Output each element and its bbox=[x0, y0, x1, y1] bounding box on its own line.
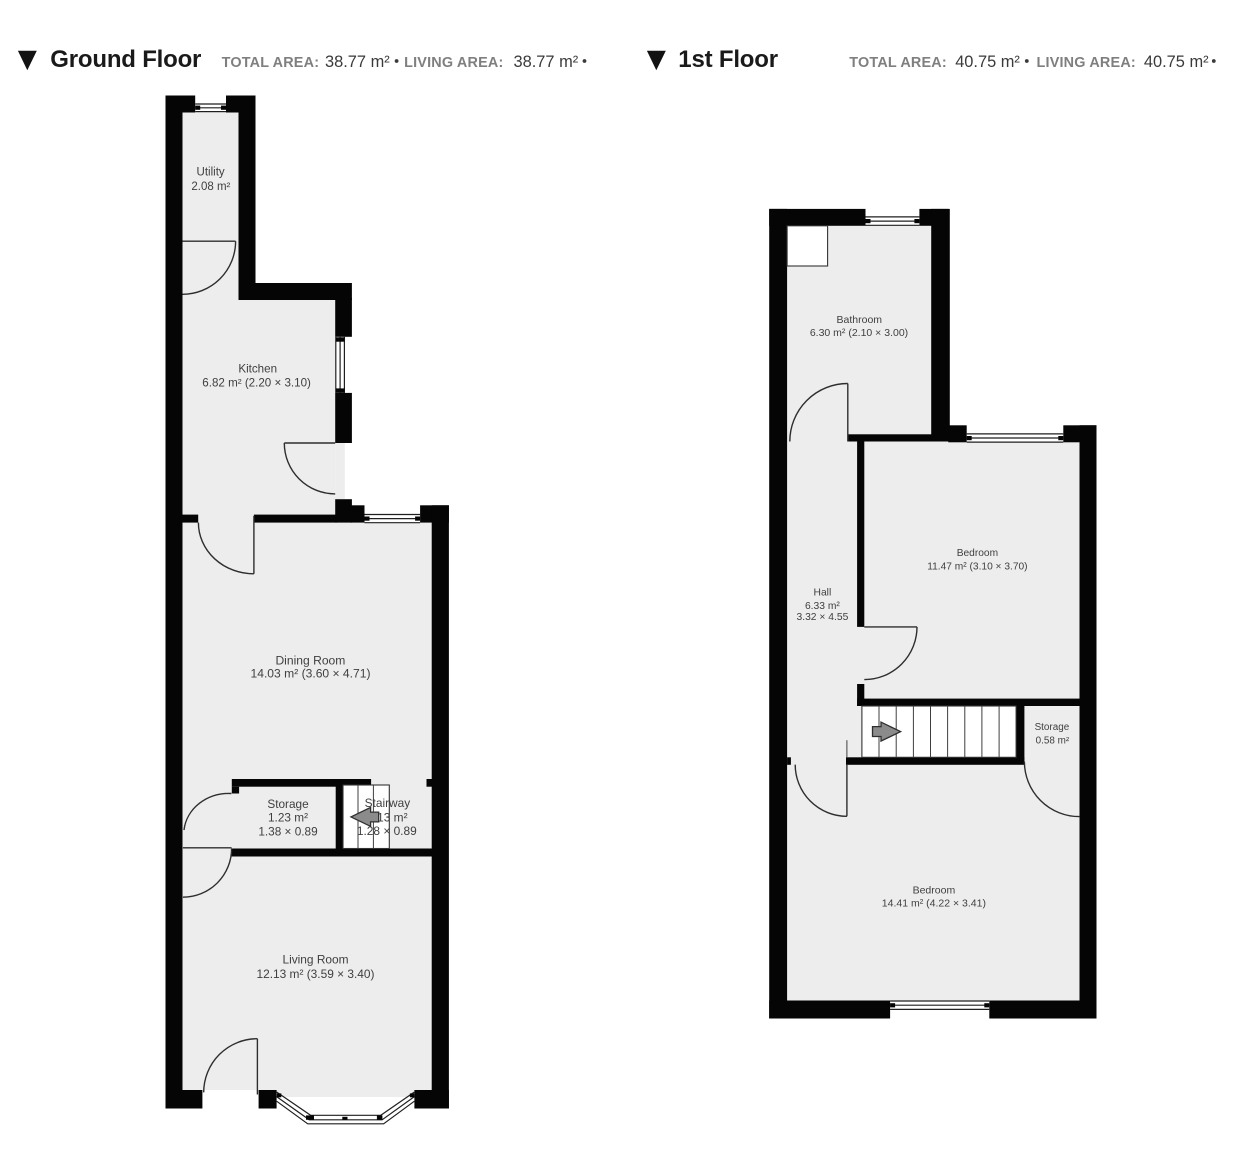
svg-text:LIVING AREA:: LIVING AREA: bbox=[404, 55, 503, 71]
svg-text:1.38 × 0.89: 1.38 × 0.89 bbox=[258, 824, 317, 838]
svg-text:38.77 m²: 38.77 m² bbox=[514, 53, 579, 71]
svg-text:0.58 m²: 0.58 m² bbox=[1036, 736, 1070, 747]
svg-text:14.41 m² (4.22 × 3.41): 14.41 m² (4.22 × 3.41) bbox=[882, 897, 986, 909]
svg-text:TOTAL AREA:: TOTAL AREA: bbox=[849, 55, 947, 71]
svg-text:3.32 × 4.55: 3.32 × 4.55 bbox=[796, 612, 848, 623]
svg-text:Storage: Storage bbox=[1035, 722, 1070, 733]
svg-text:Kitchen: Kitchen bbox=[238, 363, 277, 376]
svg-text:LIVING AREA:: LIVING AREA: bbox=[1037, 55, 1136, 71]
svg-text:38.77 m²: 38.77 m² bbox=[325, 53, 390, 71]
svg-text:6.33 m²: 6.33 m² bbox=[805, 601, 840, 612]
svg-text:Living Room: Living Room bbox=[282, 952, 348, 966]
svg-text:Hall: Hall bbox=[814, 588, 832, 599]
svg-text:Dining Room: Dining Room bbox=[275, 653, 345, 667]
svg-text:Storage: Storage bbox=[267, 797, 309, 811]
svg-text:1.23 m²: 1.23 m² bbox=[268, 811, 308, 825]
svg-text:1st Floor: 1st Floor bbox=[678, 46, 778, 73]
svg-text:6.82 m² (2.20 × 3.10): 6.82 m² (2.20 × 3.10) bbox=[202, 376, 311, 389]
svg-text:11.47 m² (3.10 × 3.70): 11.47 m² (3.10 × 3.70) bbox=[927, 562, 1027, 573]
svg-text:Ground Floor: Ground Floor bbox=[50, 46, 201, 73]
svg-text:Utility: Utility bbox=[197, 167, 225, 179]
svg-text:12.13 m² (3.59 × 3.40): 12.13 m² (3.59 × 3.40) bbox=[257, 967, 375, 981]
svg-text:6.30 m² (2.10 × 3.00): 6.30 m² (2.10 × 3.00) bbox=[810, 327, 908, 339]
svg-text:Bedroom: Bedroom bbox=[913, 885, 956, 897]
svg-text:1.28 × 0.89: 1.28 × 0.89 bbox=[357, 824, 417, 838]
svg-text:14.03 m² (3.60 × 4.71): 14.03 m² (3.60 × 4.71) bbox=[251, 667, 371, 681]
svg-text:Bedroom: Bedroom bbox=[957, 548, 998, 559]
svg-text:TOTAL AREA:: TOTAL AREA: bbox=[222, 55, 320, 71]
svg-text:Stairway: Stairway bbox=[365, 796, 411, 810]
svg-text:Bathroom: Bathroom bbox=[837, 314, 883, 326]
svg-text:40.75 m²: 40.75 m² bbox=[955, 53, 1020, 71]
svg-text:40.75 m²: 40.75 m² bbox=[1144, 53, 1209, 71]
svg-text:2.08 m²: 2.08 m² bbox=[191, 181, 230, 193]
